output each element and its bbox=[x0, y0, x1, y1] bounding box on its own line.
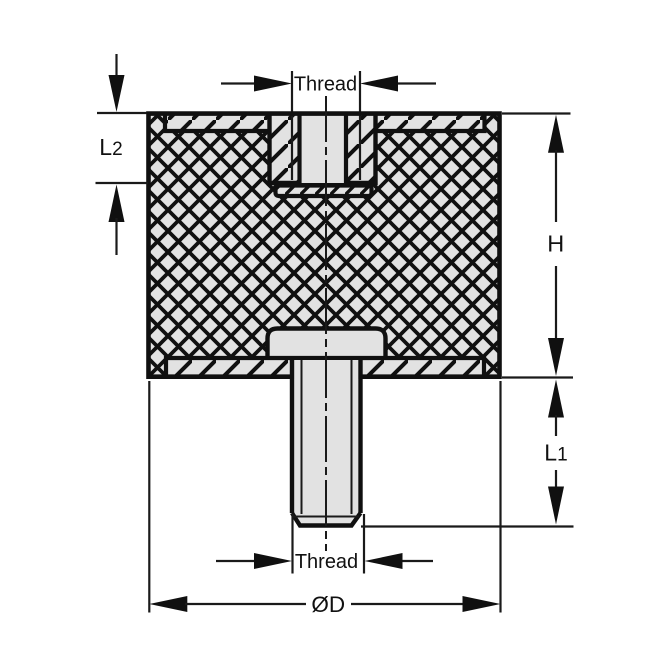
svg-text:L2: L2 bbox=[99, 134, 122, 160]
svg-text:L1: L1 bbox=[544, 440, 567, 466]
svg-text:H: H bbox=[547, 231, 564, 257]
svg-text:ØD: ØD bbox=[311, 592, 345, 617]
svg-text:Thread: Thread bbox=[295, 551, 358, 573]
svg-text:Thread: Thread bbox=[294, 73, 357, 95]
